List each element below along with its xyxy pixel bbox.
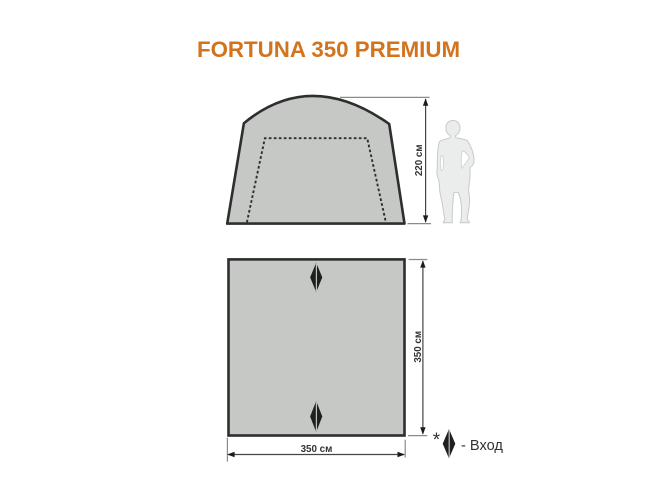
svg-text:- Вход: - Вход bbox=[461, 438, 503, 454]
svg-text:350 см: 350 см bbox=[413, 331, 424, 363]
svg-text:220 см: 220 см bbox=[414, 144, 425, 176]
svg-text:FORTUNA 350 PREMIUM: FORTUNA 350 PREMIUM bbox=[197, 37, 460, 62]
svg-text:*: * bbox=[433, 430, 441, 451]
svg-text:350 см: 350 см bbox=[301, 444, 333, 455]
